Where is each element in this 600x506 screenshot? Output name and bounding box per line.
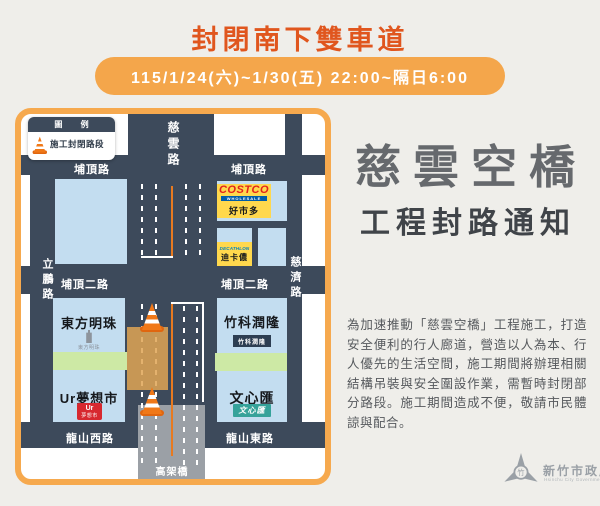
traffic-cone-icon bbox=[139, 302, 165, 332]
hsinchu-city-emblem-icon: 竹 bbox=[503, 449, 539, 493]
costco-wordmark: COSTCO bbox=[219, 185, 269, 196]
road-closure-poster: 封閉南下雙車道 115/1/24(六)~1/30(五) 22:00~隔日6:00 bbox=[0, 0, 600, 506]
notice-title-main: 慈雲空橋 bbox=[336, 131, 594, 197]
road-label-puding2-right: 埔頂二路 bbox=[217, 276, 273, 292]
legend-item-label: 施工封閉路段 bbox=[50, 138, 104, 150]
lane-stopline bbox=[141, 256, 173, 258]
lane-marking-center bbox=[171, 186, 173, 257]
road-label-ciyun: 慈雲路 bbox=[165, 121, 182, 169]
map-legend: 圖 例 施工封閉路段 bbox=[28, 117, 115, 160]
lane-marking bbox=[183, 306, 185, 466]
legend-header: 圖 例 bbox=[28, 117, 115, 132]
city-block bbox=[55, 179, 127, 264]
lane-marking-center bbox=[171, 304, 173, 456]
lane-marking bbox=[155, 184, 157, 258]
viaduct-label: 高架橋 bbox=[142, 463, 202, 478]
road-label-longshan-west: 龍山西路 bbox=[62, 430, 118, 446]
traffic-cone-icon bbox=[32, 136, 48, 154]
road-label-puding2-left: 埔頂二路 bbox=[57, 276, 113, 292]
legend-cone bbox=[32, 134, 48, 154]
costco-wholesale-bar: WHOLESALE bbox=[221, 196, 267, 201]
oriental-pearl-logo: 東方明珠 bbox=[53, 330, 125, 351]
traffic-cone-icon bbox=[139, 386, 165, 416]
wenxin-hui-logo: 文心匯 bbox=[233, 404, 271, 417]
svg-text:竹: 竹 bbox=[517, 468, 524, 477]
green-belt bbox=[53, 352, 127, 370]
road-label-lipeng: 立鵬路 bbox=[39, 258, 55, 303]
construction-closure-zone bbox=[127, 327, 168, 390]
poster-title: 封閉南下雙車道 bbox=[0, 18, 600, 57]
road-label-puding-right: 埔頂路 bbox=[227, 161, 271, 177]
closure-schedule-banner: 115/1/24(六)~1/30(五) 22:00~隔日6:00 bbox=[95, 57, 505, 95]
decathlon-chinese-name: 迪卡儂 bbox=[221, 252, 248, 263]
costco-sign: COSTCO WHOLESALE 好市多 bbox=[217, 184, 271, 218]
green-belt bbox=[215, 353, 287, 371]
road-label-puding-left: 埔頂路 bbox=[70, 161, 114, 177]
gov-name-en: Hsinchu City Government bbox=[544, 477, 600, 482]
road-label-ciji: 慈濟路 bbox=[287, 256, 303, 301]
government-signature: 竹 新竹市政府 Hsinchu City Government bbox=[503, 449, 595, 497]
ciji-road-north bbox=[285, 114, 302, 155]
lane-marking bbox=[185, 184, 187, 260]
decathlon-sign: DECATHLON 迪卡儂 bbox=[217, 242, 252, 266]
notice-title-sub: 工程封路通知 bbox=[336, 198, 594, 242]
costco-chinese-name: 好市多 bbox=[229, 204, 259, 217]
lane-marking bbox=[141, 184, 143, 258]
city-block bbox=[258, 228, 286, 266]
closure-map: COSTCO WHOLESALE 好市多 DECATHLON 迪卡儂 東方明珠 … bbox=[15, 108, 331, 485]
zhuke-runlong-logo: 竹科潤隆 bbox=[233, 335, 271, 347]
notice-body-text: 為加速推動「慈雲空橋」工程施工，打造安全便利的行人廊道，營造以人為本、行人優先的… bbox=[347, 316, 587, 433]
ur-market-logo: Ur 夢想市 bbox=[77, 403, 102, 420]
zhuke-runlong-label: 竹科潤隆 bbox=[217, 312, 287, 331]
lane-stopline bbox=[171, 302, 204, 304]
lane-marking bbox=[199, 184, 201, 260]
lane-edge-line bbox=[202, 302, 204, 402]
lane-marking bbox=[196, 306, 198, 466]
road-label-longshan-east: 龍山東路 bbox=[222, 430, 278, 446]
building-icon bbox=[84, 330, 94, 343]
